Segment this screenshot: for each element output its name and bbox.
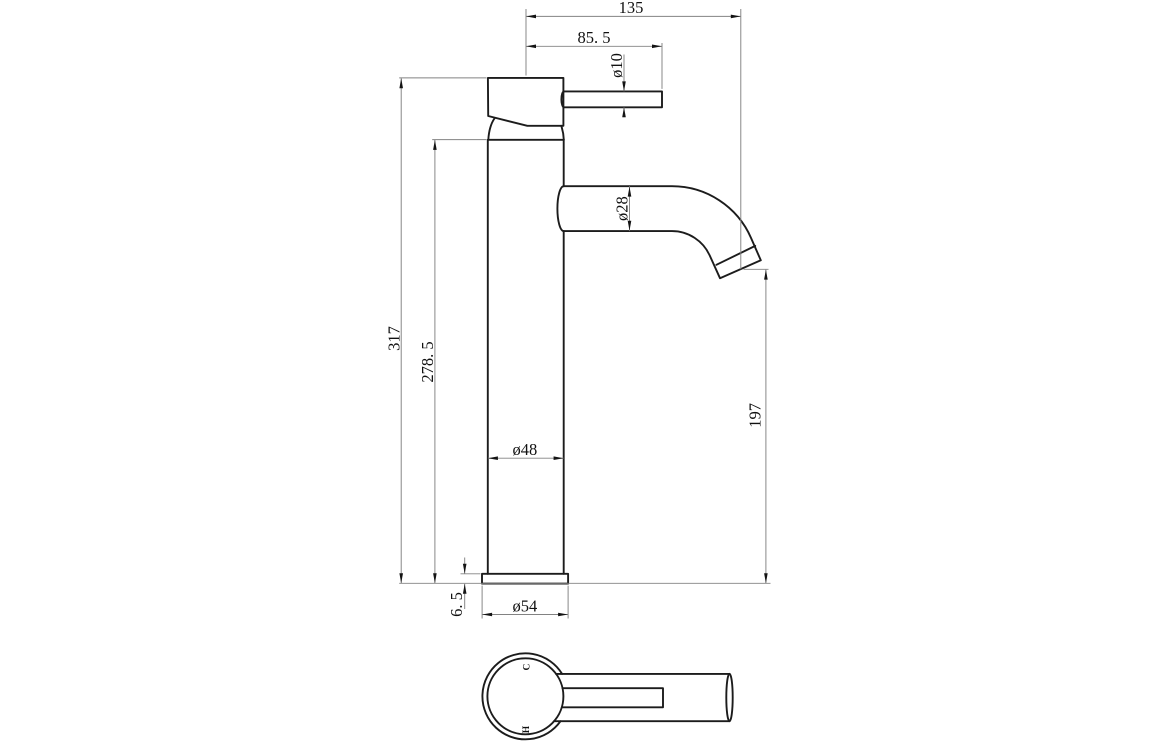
svg-text:278. 5: 278. 5: [418, 341, 437, 382]
svg-text:6. 5: 6. 5: [447, 592, 466, 617]
svg-text:H: H: [522, 725, 532, 733]
svg-text:C: C: [523, 663, 533, 670]
svg-text:ø48: ø48: [513, 440, 538, 459]
svg-text:ø28: ø28: [612, 196, 631, 221]
svg-text:85. 5: 85. 5: [578, 28, 611, 47]
svg-text:ø54: ø54: [513, 596, 538, 615]
svg-text:317: 317: [384, 326, 403, 351]
svg-text:135: 135: [619, 0, 644, 17]
svg-text:ø10: ø10: [607, 53, 626, 78]
svg-text:197: 197: [746, 403, 765, 428]
